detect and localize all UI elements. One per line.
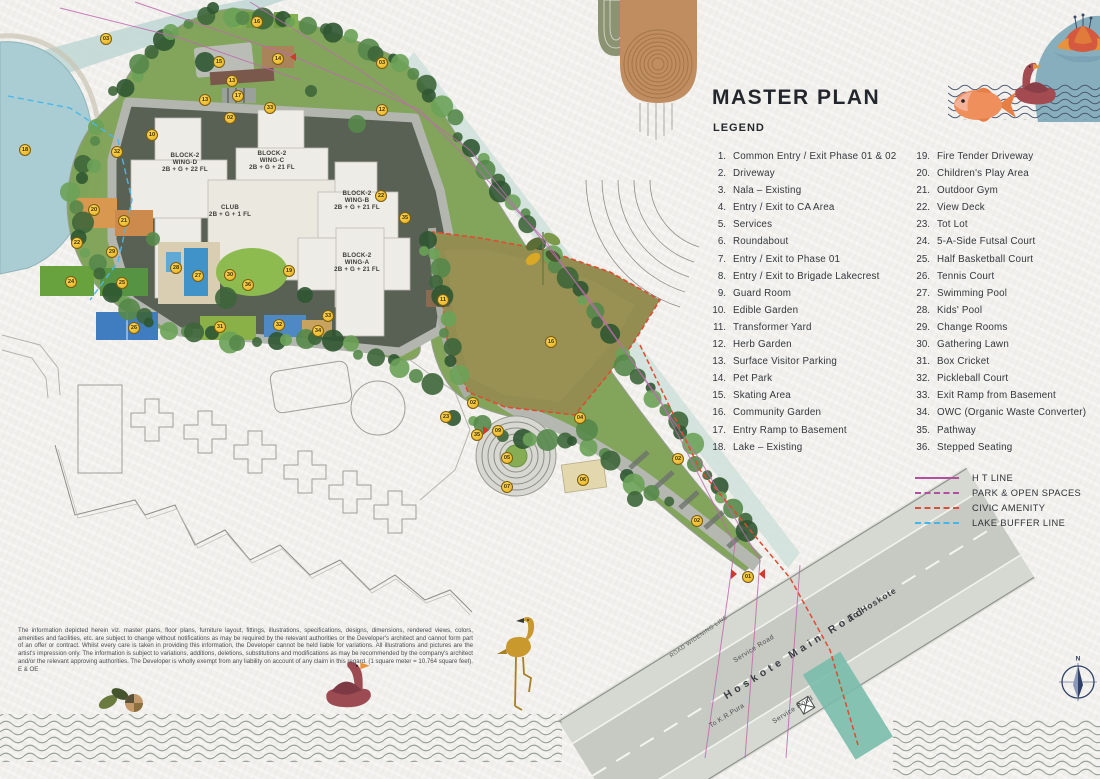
building-label: CLUB2B + G + 1 FL <box>185 204 275 218</box>
building-label: BLOCK-2WING-C2B + G + 21 FL <box>227 150 317 171</box>
master-plan-page: MASTER PLAN LEGEND 1.Common Entry / Exit… <box>0 0 1100 779</box>
building-label: BLOCK-2WING-D2B + G + 22 FL <box>140 152 230 173</box>
building-label: BLOCK-2WING-B2B + G + 21 FL <box>312 190 402 211</box>
building-label: BLOCK-2WING-A2B + G + 21 FL <box>312 252 402 273</box>
compass-north-label: N <box>1076 656 1081 663</box>
disclaimer-text: The information depicted herein viz. mas… <box>18 627 473 673</box>
